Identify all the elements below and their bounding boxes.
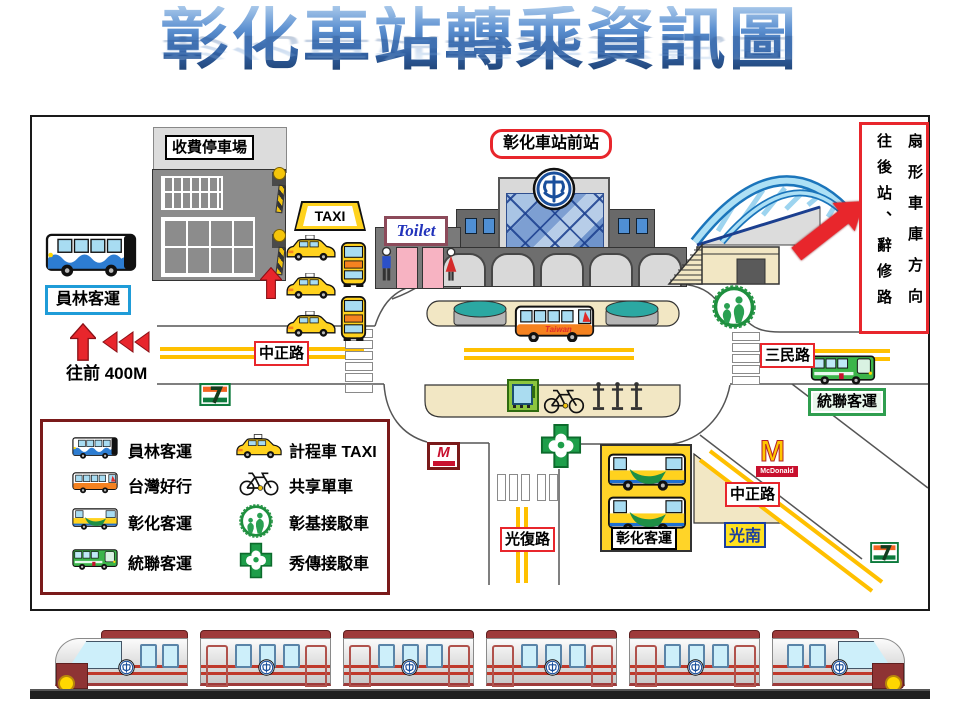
changhua-bus-icon	[607, 453, 687, 491]
legend-label: 計程車 TAXI	[289, 438, 377, 462]
legend-label: 秀傳接駁車	[289, 550, 369, 574]
taiwan-bus-text: Taiwan	[545, 325, 572, 334]
bus-front-icon	[340, 295, 367, 342]
toilet-door	[422, 247, 444, 289]
station-front-label: 彰化車站前站	[490, 129, 612, 159]
planter-right	[606, 301, 658, 325]
legend-label: 員林客運	[128, 438, 192, 462]
train-locomotive	[55, 630, 188, 688]
seven-eleven-icon	[870, 542, 899, 563]
parking-lot	[152, 169, 286, 281]
legend-box: 員林客運 台灣好行 彰化客運 統聯客運 計程車 TAXI 共享單車 彰基接駁車 …	[40, 419, 390, 595]
bus-front-icon	[340, 241, 367, 288]
legend-label: 統聯客運	[128, 550, 192, 574]
toilet-door	[396, 247, 418, 289]
toilet-sign: Toilet	[384, 216, 448, 246]
page-title-area: 彰化車站轉乘資訊圖 彰化車站轉乘資訊圖	[0, 6, 960, 128]
train-locomotive	[772, 630, 905, 688]
shared-bike-icon	[237, 468, 281, 496]
road-label-guangfu: 光復路	[500, 527, 555, 552]
man-icon	[379, 246, 394, 285]
woman-icon	[443, 246, 459, 285]
train-car	[200, 630, 331, 688]
parking-gate-icon	[272, 234, 286, 248]
station-map: 收費停車場 員林客運 往前 400M TAXI Toilet 彰化車站前站	[30, 115, 930, 611]
left-arrow-icon	[102, 331, 118, 353]
tra-logo-icon	[401, 659, 418, 676]
rail-track	[30, 689, 930, 699]
seven-eleven-icon	[199, 383, 231, 406]
cch-shuttle-icon	[239, 504, 273, 538]
taxi-icon	[285, 235, 337, 262]
walk-forward-label: 往前 400M	[66, 359, 147, 384]
planter-left	[454, 301, 506, 325]
show-chwan-shuttle-icon	[239, 542, 273, 579]
taxi-icon	[235, 434, 283, 460]
road-label-zhongzheng-east: 中正路	[725, 482, 780, 507]
taxi-icon	[285, 273, 337, 300]
rear-exit-text-right: 扇形車庫方向	[904, 133, 925, 319]
yuanlin-stop-label: 員林客運	[45, 285, 131, 315]
cch-shuttle-stop-icon	[712, 285, 756, 329]
page-title-reflection: 彰化車站轉乘資訊圖	[0, 34, 960, 60]
tra-logo-icon	[687, 659, 704, 676]
mcdonalds-label: McDonald	[756, 466, 798, 477]
parking-gate-icon	[272, 172, 286, 186]
taiwan-trip-bus-icon	[514, 305, 595, 342]
mcdonalds-icon: M	[760, 437, 785, 467]
changhua-terminal-label: 彰化客運	[611, 527, 677, 550]
shared-bike-icon	[542, 385, 586, 414]
road-label-sanmin: 三民路	[760, 343, 815, 368]
bike-rack-icon	[611, 381, 624, 411]
changhua-bus-terminal: 彰化客運	[600, 444, 692, 552]
ubus-stop-label: 統聯客運	[808, 388, 886, 416]
up-arrow-icon	[260, 267, 282, 299]
road-label-zhongzheng-west: 中正路	[254, 341, 309, 366]
tra-logo-icon	[532, 167, 576, 211]
tra-logo-icon	[118, 659, 135, 676]
yuanlin-bus-icon	[72, 436, 118, 460]
taxi-stand-sign: TAXI	[294, 201, 366, 231]
taiwan-trip-bus-icon	[72, 471, 118, 494]
rear-exit-text-left: 往後站、辭修路	[873, 133, 894, 315]
parking-stalls-large	[161, 217, 255, 277]
mos-burger-icon: M	[427, 442, 460, 470]
train-car	[486, 630, 617, 688]
left-arrow-icon	[118, 331, 134, 353]
taxi-icon	[285, 311, 337, 338]
left-arrow-icon	[134, 331, 150, 353]
changhua-bus-icon	[72, 507, 118, 531]
station-arcade	[437, 247, 687, 287]
crosswalk	[732, 332, 760, 387]
tra-logo-icon	[258, 659, 275, 676]
tra-logo-icon	[544, 659, 561, 676]
train-car	[629, 630, 760, 688]
rear-exit-info-box: 往後站、辭修路 扇形車庫方向	[859, 122, 929, 334]
legend-label: 台灣好行	[128, 473, 192, 497]
crosswalk	[497, 474, 561, 506]
bike-rack-icon	[630, 381, 643, 411]
parking-stalls-small	[161, 176, 223, 210]
up-arrow-icon	[70, 323, 96, 361]
ubus-icon	[810, 355, 876, 385]
ubus-icon	[72, 548, 118, 571]
kuangnan-sign: 光南	[724, 522, 766, 548]
legend-label: 彰基接駁車	[289, 510, 369, 534]
legend-label: 彰化客運	[128, 510, 192, 534]
bike-rental-kiosk-icon	[507, 379, 539, 412]
taxi-sign-text: TAXI	[303, 206, 357, 226]
train-car	[343, 630, 474, 688]
bike-rack-icon	[592, 381, 605, 411]
show-chwan-cross-icon	[540, 423, 582, 469]
legend-label: 共享單車	[289, 473, 353, 497]
tra-logo-icon	[831, 659, 848, 676]
yuanlin-bus-icon	[45, 233, 137, 277]
parking-label: 收費停車場	[165, 135, 254, 160]
